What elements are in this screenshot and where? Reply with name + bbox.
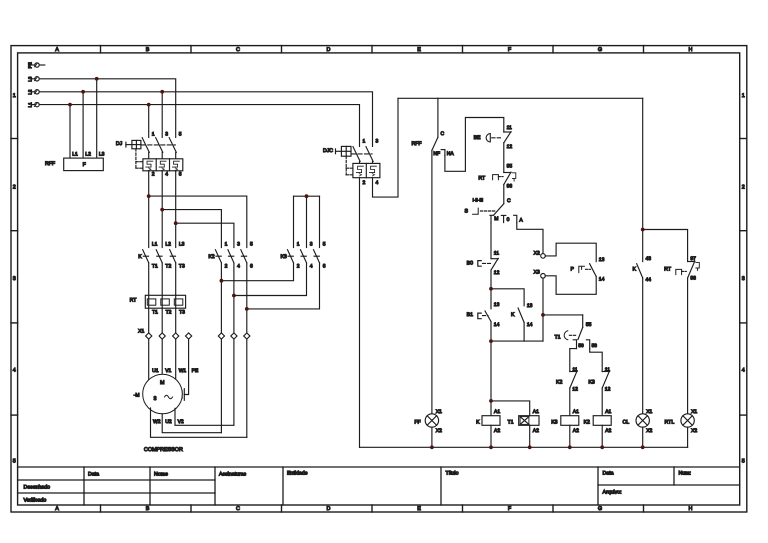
svg-text:L1: L1 [27,102,32,108]
svg-text:E: E [417,506,421,512]
svg-text:4: 4 [165,172,168,178]
svg-text:11: 11 [605,367,610,373]
svg-text:K3: K3 [280,254,286,260]
svg-text:98: 98 [690,276,696,282]
svg-text:NA: NA [447,151,455,157]
svg-text:K2: K2 [556,380,562,386]
svg-text:1: 1 [152,132,155,138]
svg-text:K: K [138,254,142,260]
svg-text:B: B [146,47,150,53]
svg-text:-M: -M [134,392,140,398]
svg-text:F: F [508,47,512,53]
svg-text:M: M [494,216,498,222]
svg-text:6: 6 [323,264,326,270]
svg-text:A2: A2 [494,428,500,434]
svg-text:BE: BE [474,135,481,141]
svg-text:I-II-III: I-II-III [472,197,483,202]
svg-text:2: 2 [152,172,155,178]
svg-text:K: K [476,419,480,425]
svg-text:RT: RT [664,267,672,273]
svg-text:X2: X2 [646,428,652,434]
svg-text:A2: A2 [533,428,539,434]
svg-text:RTL: RTL [665,419,675,425]
svg-text:0: 0 [507,217,510,223]
svg-text:H: H [689,47,693,53]
svg-text:K3: K3 [551,419,557,425]
svg-text:L3: L3 [27,76,32,82]
svg-text:Entidade: Entidade [287,470,308,476]
svg-text:V2: V2 [178,419,184,425]
svg-text:14: 14 [527,322,533,328]
svg-text:3: 3 [310,242,313,248]
svg-text:Num:: Num: [679,470,691,476]
svg-text:Data: Data [88,471,99,477]
svg-text:A1: A1 [533,409,539,415]
svg-text:Arquivo:: Arquivo: [603,489,622,495]
svg-text:3: 3 [13,276,16,282]
svg-text:K2: K2 [208,254,214,260]
svg-text:E: E [417,47,421,53]
svg-text:56: 56 [578,343,584,349]
svg-text:96: 96 [507,184,513,190]
svg-text:5: 5 [742,459,745,465]
svg-text:A1: A1 [494,409,500,415]
svg-text:14: 14 [494,322,500,328]
svg-text:A: A [519,217,523,223]
svg-text:V1: V1 [165,368,171,374]
svg-text:12: 12 [605,387,611,393]
svg-text:X1: X1 [138,328,144,334]
svg-text:6: 6 [250,264,253,270]
svg-text:11: 11 [572,367,577,373]
svg-text:K2: K2 [584,419,590,425]
svg-text:X2: X2 [534,251,540,257]
svg-text:14: 14 [599,276,605,282]
svg-text:2: 2 [225,264,228,270]
svg-text:COMPRESSOR: COMPRESSOR [144,447,183,453]
svg-text:T1: T1 [152,264,158,270]
svg-text:S: S [465,209,469,215]
svg-text:Título: Título [446,470,459,476]
svg-text:C: C [236,47,240,53]
svg-text:F: F [83,162,86,168]
svg-text:A1: A1 [605,409,611,415]
svg-text:X1: X1 [436,409,442,415]
svg-text:H: H [689,506,693,512]
svg-text:12: 12 [494,270,500,276]
svg-text:W1: W1 [179,368,187,374]
svg-text:A2: A2 [573,428,579,434]
svg-text:L1: L1 [72,152,78,158]
svg-text:L2: L2 [85,152,91,158]
svg-text:NF: NF [433,151,440,157]
svg-text:L2: L2 [165,242,171,248]
svg-text:5: 5 [250,242,253,248]
svg-text:P: P [571,267,575,273]
svg-text:T3: T3 [179,310,185,316]
svg-text:A: A [55,47,59,53]
svg-text:1: 1 [363,138,366,144]
svg-text:4: 4 [13,367,16,373]
svg-text:Assinaturas: Assinaturas [219,471,247,477]
svg-text:3: 3 [742,276,745,282]
svg-text:L2: L2 [27,89,32,95]
svg-text:B1: B1 [467,312,473,318]
svg-text:1: 1 [13,93,16,99]
svg-text:X1: X1 [691,409,697,415]
svg-text:2: 2 [742,185,745,191]
svg-text:3: 3 [154,396,157,402]
svg-text:DJ: DJ [116,141,123,147]
svg-text:97: 97 [690,256,696,262]
svg-text:CL: CL [623,419,630,425]
svg-text:DJC: DJC [323,148,333,154]
svg-text:C: C [507,198,511,204]
svg-text:K3: K3 [588,380,594,386]
svg-text:4: 4 [376,180,379,186]
svg-text:U1: U1 [152,368,159,374]
svg-text:2: 2 [297,264,300,270]
svg-text:D: D [327,47,331,53]
svg-text:L3: L3 [99,152,105,158]
svg-text:95: 95 [507,164,513,170]
svg-text:A1: A1 [573,409,579,415]
svg-text:X2: X2 [691,428,697,434]
svg-text:A2: A2 [605,428,611,434]
svg-text:3: 3 [237,242,240,248]
svg-text:13: 13 [527,303,533,309]
svg-text:T3: T3 [179,264,185,270]
svg-text:5: 5 [323,242,326,248]
svg-text:C: C [441,131,445,137]
svg-text:B: B [146,506,150,512]
svg-text:T1: T1 [507,419,513,425]
svg-text:RT: RT [130,298,138,304]
svg-text:G: G [598,506,602,512]
svg-text:M: M [160,380,165,386]
svg-text:5: 5 [179,132,182,138]
svg-text:PE: PE [27,62,32,68]
svg-text:12: 12 [507,144,513,150]
svg-text:13: 13 [494,302,500,308]
svg-text:2: 2 [13,185,16,191]
svg-text:D: D [327,506,331,512]
svg-text:RFF: RFF [411,141,421,147]
svg-text:12: 12 [572,387,578,393]
svg-text:3: 3 [165,132,168,138]
svg-text:L3: L3 [179,242,185,248]
svg-text:T2: T2 [165,264,171,270]
svg-text:4: 4 [742,367,745,373]
svg-text:X2: X2 [436,428,442,434]
svg-text:X3: X3 [534,270,540,276]
svg-text:11: 11 [507,125,512,131]
svg-text:A: A [55,506,59,512]
svg-text:Nome: Nome [154,471,168,477]
svg-text:1: 1 [225,242,228,248]
svg-text:RFF: RFF [45,161,55,167]
svg-text:T2: T2 [166,310,172,316]
svg-text:55: 55 [586,322,592,328]
svg-text:44: 44 [646,277,652,283]
svg-text:4: 4 [237,264,240,270]
svg-text:X1: X1 [646,409,652,415]
svg-text:RT: RT [478,175,486,181]
svg-text:K: K [633,267,637,273]
svg-text:U2: U2 [165,419,172,425]
svg-text:13: 13 [599,257,605,263]
svg-text:11: 11 [494,251,499,257]
svg-text:1: 1 [297,242,300,248]
svg-text:PE: PE [192,368,199,374]
svg-text:C: C [236,506,240,512]
svg-text:FF: FF [414,419,420,425]
svg-text:G: G [598,47,602,53]
svg-text:3: 3 [376,138,379,144]
svg-text:58: 58 [592,343,598,349]
svg-text:2: 2 [363,180,366,186]
svg-text:Data: Data [603,470,614,476]
svg-text:1: 1 [742,93,745,99]
svg-text:Desenhado: Desenhado [24,484,51,490]
svg-text:B0: B0 [467,260,473,266]
svg-text:43: 43 [646,256,652,262]
svg-text:T1: T1 [554,334,560,340]
svg-text:5: 5 [13,459,16,465]
svg-text:T1: T1 [152,310,158,316]
svg-text:6: 6 [179,172,182,178]
svg-text:L1: L1 [152,242,158,248]
svg-text:K: K [511,312,515,318]
svg-text:W2: W2 [153,419,161,425]
svg-text:4: 4 [310,264,313,270]
svg-text:Verificado: Verificado [24,497,47,503]
